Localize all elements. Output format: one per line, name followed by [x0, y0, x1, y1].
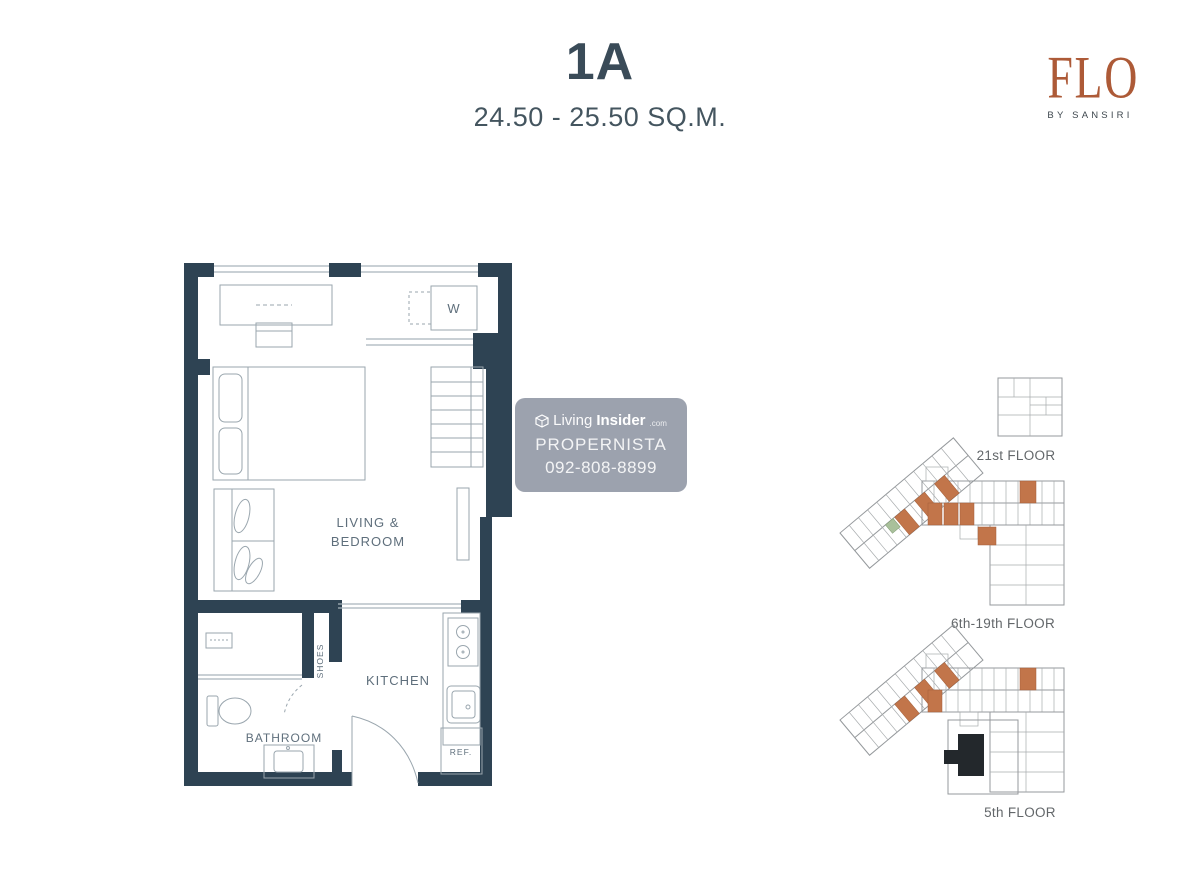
pillow [219, 428, 242, 474]
watermark-brand-tld: .com [650, 419, 667, 429]
key-plan-21st [998, 378, 1062, 436]
desk [220, 285, 332, 325]
page-title: 1A [0, 36, 1200, 88]
washer-label: W [447, 301, 460, 316]
living-bedroom-label-line2: BEDROOM [331, 534, 405, 549]
brand-logo-text: FLO [1047, 48, 1132, 108]
watermark-brand-suffix: Insider [596, 412, 645, 430]
bed [213, 367, 365, 480]
stool [256, 323, 292, 347]
watermark: LivingInsider.com PROPERNISTA 092-808-88… [515, 398, 687, 492]
living-bedroom-label-line1: LIVING & [337, 515, 400, 530]
toilet [219, 698, 251, 724]
unit-floor-plan: LIVING & BEDROOM KITCHEN BATHROOM SHOES … [180, 255, 520, 800]
watermark-agency: PROPERNISTA [535, 435, 667, 455]
tv-panel [457, 488, 469, 560]
watermark-brand-prefix: Living [553, 412, 592, 430]
key-plan-5th [840, 625, 1064, 794]
key-plan-5th-label: 5th FLOOR [984, 805, 1056, 820]
entrance-door-arc [352, 716, 418, 783]
watermark-brand: LivingInsider.com [535, 412, 667, 430]
pillow [219, 374, 242, 422]
plan-windows [214, 266, 478, 608]
floor-plan-page: 1A 24.50 - 25.50 SQ.M. FLO BY SANSIRI [0, 0, 1200, 890]
page-subtitle: 24.50 - 25.50 SQ.M. [0, 102, 1200, 133]
shoes-label: SHOES [315, 644, 325, 679]
kitchen-counter [443, 613, 480, 745]
key-plan-diagrams: 21st FLOOR 6th-19th FLOOR [830, 365, 1110, 860]
header: 1A 24.50 - 25.50 SQ.M. [0, 36, 1200, 133]
key-plan-6-19-label: 6th-19th FLOOR [951, 616, 1055, 631]
kitchen-label: KITCHEN [366, 673, 430, 688]
sink-basin [274, 751, 303, 772]
toilet-tank [207, 696, 218, 726]
fridge-label: REF. [450, 747, 472, 757]
key-plan-6-19-highlighted-units [885, 475, 1036, 545]
brand-logo: FLO BY SANSIRI [1038, 48, 1142, 121]
watermark-phone: 092-808-8899 [545, 458, 657, 478]
key-plan-21st-label: 21st FLOOR [977, 448, 1056, 463]
bathroom-label: BATHROOM [246, 731, 322, 745]
living-insider-cube-icon [535, 414, 549, 428]
